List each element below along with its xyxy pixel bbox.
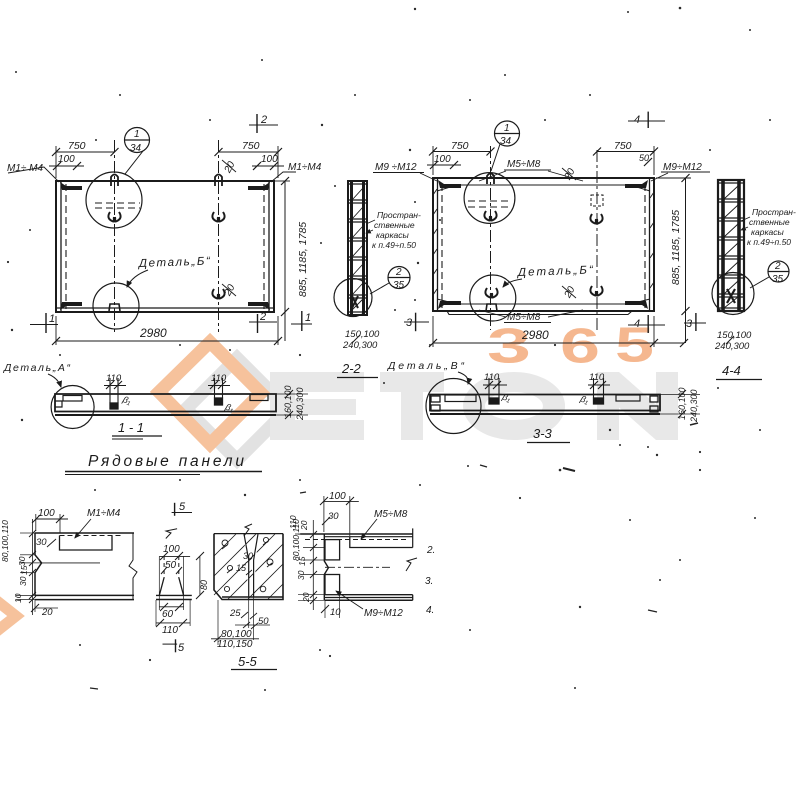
svg-text:80,100,110: 80,100,110 (0, 520, 10, 562)
svg-text:β₁: β₁ (121, 394, 133, 407)
svg-text:750: 750 (242, 140, 260, 152)
svg-text:110,150: 110,150 (217, 639, 253, 650)
svg-text:750: 750 (68, 140, 86, 152)
svg-text:4: 4 (634, 114, 640, 126)
svg-text:1 - 1: 1 - 1 (118, 420, 144, 435)
svg-text:34: 34 (130, 143, 142, 154)
svg-text:2980: 2980 (521, 328, 549, 342)
svg-text:30: 30 (18, 576, 28, 586)
svg-text:М5÷М8: М5÷М8 (507, 312, 541, 323)
svg-text:4.: 4. (426, 605, 434, 616)
svg-text:3.: 3. (425, 576, 433, 587)
svg-text:Рядовые панели: Рядовые панели (88, 453, 244, 470)
svg-text:80: 80 (199, 580, 209, 590)
svg-text:30: 30 (17, 556, 27, 566)
svg-text:750: 750 (451, 140, 469, 152)
svg-text:6: 6 (560, 320, 600, 374)
svg-text:2-2: 2-2 (341, 361, 362, 376)
svg-text:1: 1 (134, 129, 140, 140)
svg-text:110: 110 (589, 372, 605, 383)
svg-text:М5÷М8: М5÷М8 (374, 509, 408, 520)
svg-text:Простран-: Простран- (377, 210, 421, 220)
svg-text:М1÷М4: М1÷М4 (87, 508, 121, 519)
svg-text:30: 30 (328, 511, 339, 522)
svg-text:240,300: 240,300 (689, 389, 699, 423)
svg-text:100: 100 (58, 154, 75, 165)
svg-text:к п.49÷п.50: к п.49÷п.50 (747, 237, 791, 247)
svg-text:30: 30 (36, 537, 47, 548)
svg-text:к п.49÷п.50: к п.49÷п.50 (372, 240, 416, 250)
svg-text:50: 50 (165, 560, 177, 571)
svg-text:60: 60 (162, 609, 174, 620)
svg-text:ственные: ственные (749, 217, 790, 227)
svg-text:110: 110 (106, 373, 122, 384)
svg-text:каркасы: каркасы (751, 227, 784, 237)
svg-text:240,300: 240,300 (342, 340, 378, 351)
svg-text:885, 1185, 1785: 885, 1185, 1785 (670, 210, 682, 285)
svg-text:5: 5 (179, 501, 186, 513)
svg-text:15: 15 (236, 563, 247, 573)
svg-text:80,100,110: 80,100,110 (291, 519, 301, 561)
svg-text:Деталь„Б“: Деталь„Б“ (516, 264, 595, 279)
svg-text:2.: 2. (426, 545, 435, 556)
svg-text:15: 15 (19, 565, 29, 575)
svg-text:М1÷М4: М1÷М4 (288, 162, 322, 173)
svg-text:20: 20 (41, 607, 53, 618)
svg-text:3: 3 (406, 317, 413, 329)
svg-text:110: 110 (162, 625, 178, 636)
svg-text:750: 750 (614, 140, 632, 152)
svg-text:35: 35 (772, 274, 784, 285)
svg-text:15: 15 (297, 556, 307, 566)
svg-text:4-4: 4-4 (722, 363, 741, 378)
svg-text:100: 100 (38, 508, 55, 519)
svg-text:35: 35 (393, 280, 405, 291)
svg-text:3: 3 (686, 318, 693, 330)
svg-text:160,100: 160,100 (677, 387, 687, 420)
svg-text:М5÷М8: М5÷М8 (507, 159, 541, 170)
svg-text:5: 5 (178, 642, 185, 654)
svg-text:3-3: 3-3 (533, 426, 553, 441)
svg-text:Деталь„В“: Деталь„В“ (387, 360, 465, 372)
svg-text:100: 100 (163, 544, 180, 555)
svg-text:110: 110 (211, 373, 227, 384)
svg-text:ственные: ственные (374, 220, 415, 230)
svg-text:2: 2 (259, 311, 266, 323)
svg-text:М9÷М12: М9÷М12 (364, 608, 403, 619)
svg-text:5-5: 5-5 (238, 654, 258, 669)
svg-text:М9÷М12: М9÷М12 (663, 162, 702, 173)
svg-text:50: 50 (639, 153, 649, 163)
svg-text:Простран-: Простран- (752, 207, 796, 217)
svg-text:2: 2 (260, 114, 267, 126)
svg-text:каркасы: каркасы (376, 230, 409, 240)
svg-text:М9 ÷М12: М9 ÷М12 (375, 162, 417, 173)
svg-text:2980: 2980 (139, 326, 167, 340)
svg-text:Деталь„А“: Деталь„А“ (3, 362, 71, 374)
svg-text:100: 100 (261, 154, 278, 165)
svg-text:30: 30 (296, 570, 306, 580)
svg-text:1: 1 (504, 123, 510, 134)
svg-text:34: 34 (500, 136, 512, 147)
svg-text:25: 25 (229, 608, 241, 619)
svg-text:110: 110 (484, 372, 500, 383)
svg-text:4: 4 (634, 318, 640, 330)
svg-text:240,300: 240,300 (295, 387, 305, 421)
svg-text:2: 2 (774, 261, 781, 272)
svg-text:160,100: 160,100 (283, 385, 293, 418)
svg-text:2: 2 (395, 267, 402, 278)
svg-text:10: 10 (13, 593, 23, 603)
svg-text:100: 100 (329, 491, 346, 502)
svg-text:1: 1 (305, 312, 311, 324)
svg-text:Деталь„Б“: Деталь„Б“ (137, 255, 212, 270)
svg-text:100: 100 (434, 154, 451, 165)
svg-text:1: 1 (49, 313, 55, 325)
svg-text:240,300: 240,300 (714, 341, 750, 352)
svg-text:30: 30 (243, 551, 253, 561)
svg-text:150,100: 150,100 (717, 330, 752, 341)
svg-text:885, 1185, 1785: 885, 1185, 1785 (297, 222, 309, 297)
svg-text:150,100: 150,100 (345, 329, 380, 340)
svg-text:20: 20 (301, 592, 311, 603)
